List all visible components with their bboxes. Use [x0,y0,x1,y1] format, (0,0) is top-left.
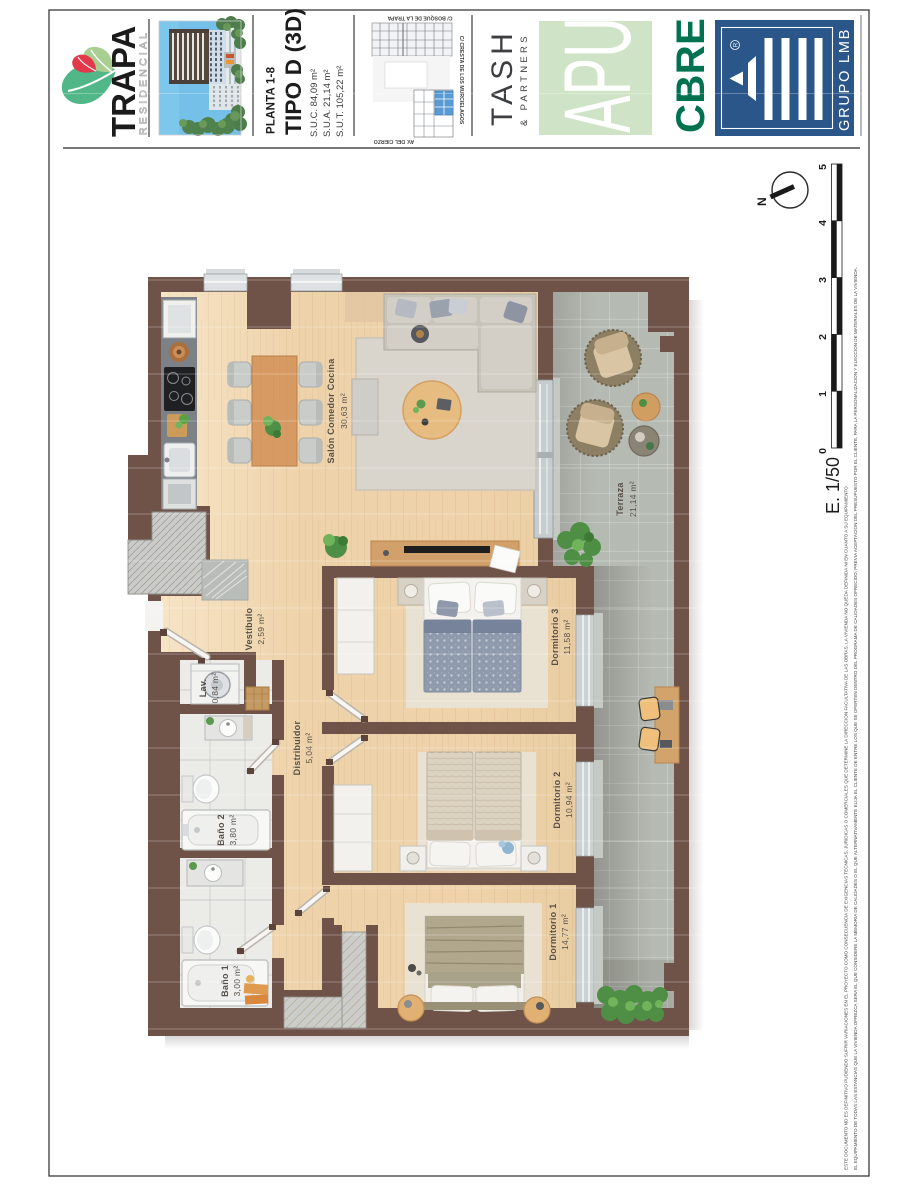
svg-text:Terraza: Terraza [615,482,625,516]
svg-text:CBRE: CBRE [669,18,713,133]
svg-text:PLANTA 1-8: PLANTA 1-8 [266,66,278,134]
svg-text:Lav.: Lav. [198,679,208,698]
svg-text:Dormitorio 2: Dormitorio 2 [552,771,562,828]
svg-text:21,14 m²: 21,14 m² [628,481,638,517]
svg-text:10,94 m²: 10,94 m² [564,782,574,818]
svg-text:TRAPA: TRAPA [105,26,142,137]
svg-text:S.U.C. 84,09 m²: S.U.C. 84,09 m² [309,69,320,137]
svg-text:GRUPO LMB: GRUPO LMB [837,28,853,131]
svg-text:TASH: TASH [486,28,519,126]
svg-text:1: 1 [817,391,829,397]
svg-text:S.U.A. 21,14 m²: S.U.A. 21,14 m² [322,69,333,137]
svg-text:C/ CRESTA DE LOS MURCIELAGOS: C/ CRESTA DE LOS MURCIELAGOS [458,36,464,125]
svg-text:3: 3 [817,277,829,283]
svg-text:Vestíbulo: Vestíbulo [244,607,254,650]
svg-text:11,58 m²: 11,58 m² [562,619,572,654]
svg-text:N: N [755,197,769,206]
svg-text:14,77 m²: 14,77 m² [560,914,570,950]
svg-text:APU: APU [545,17,651,133]
svg-text:TIPO D (3D): TIPO D (3D) [281,8,306,135]
svg-text:3,00 m²: 3,00 m² [232,966,242,997]
svg-text:0: 0 [817,448,829,454]
svg-text:E. 1/50: E. 1/50 [823,457,843,514]
svg-text:& PARTNERS: & PARTNERS [519,33,530,126]
svg-text:C/ BOSQUE DE LA TRAPA: C/ BOSQUE DE LA TRAPA [387,15,452,21]
svg-text:RESIDENCIAL: RESIDENCIAL [138,30,150,135]
svg-text:Dormitorio 3: Dormitorio 3 [550,608,560,665]
svg-text:Baño 1: Baño 1 [220,965,230,997]
svg-text:ESTE DOCUMENTO NO ES DEFINITIV: ESTE DOCUMENTO NO ES DEFINITIVO PUDIENDO… [844,486,849,1170]
svg-text:Dormitorio 1: Dormitorio 1 [548,903,558,960]
svg-text:30,63 m²: 30,63 m² [339,393,349,429]
svg-text:EL EQUIPAMIENTO DE TODAS LAS E: EL EQUIPAMIENTO DE TODAS LAS ESTANCIAS Q… [853,267,858,1170]
svg-text:4: 4 [817,220,829,226]
svg-text:R: R [734,42,740,47]
svg-text:2,59 m²: 2,59 m² [256,614,266,645]
svg-text:0,84 m²: 0,84 m² [210,673,220,704]
svg-text:AV. DEL CIERZO: AV. DEL CIERZO [374,138,415,144]
svg-text:2: 2 [817,334,829,340]
svg-text:5: 5 [817,164,829,170]
svg-text:S.U.T. 105,22 m²: S.U.T. 105,22 m² [335,66,346,137]
